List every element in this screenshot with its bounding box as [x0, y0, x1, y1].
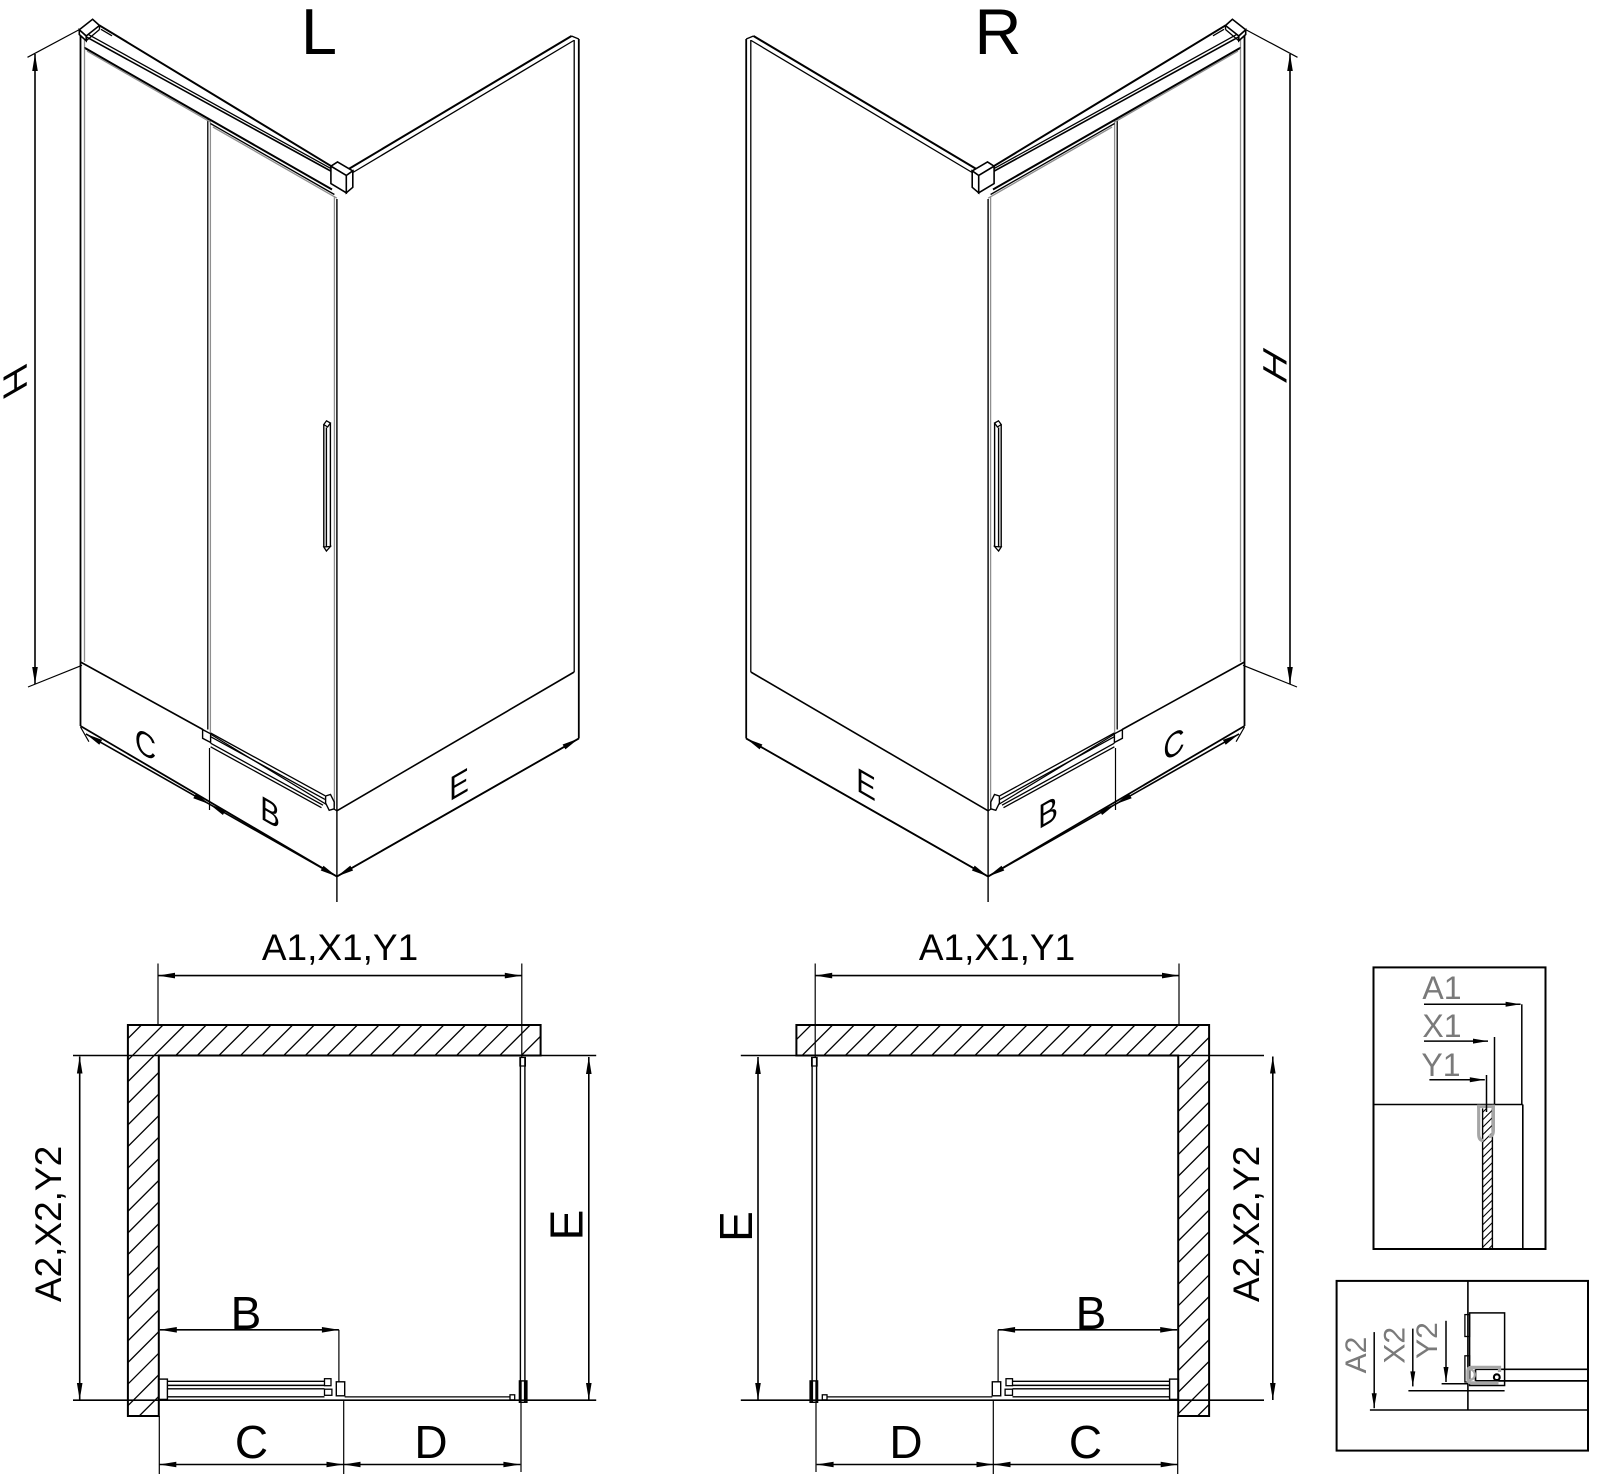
svg-text:Y1: Y1 — [1421, 1047, 1460, 1083]
svg-text:L: L — [301, 0, 337, 68]
svg-text:B: B — [1076, 1287, 1107, 1339]
svg-text:D: D — [889, 1416, 922, 1468]
svg-text:D: D — [414, 1416, 447, 1468]
svg-text:Y2: Y2 — [1411, 1322, 1444, 1359]
svg-text:A1: A1 — [1422, 970, 1461, 1006]
svg-text:C: C — [235, 1416, 268, 1468]
svg-text:A1,X1,Y1: A1,X1,Y1 — [262, 927, 418, 968]
svg-text:A2,X2,Y2: A2,X2,Y2 — [28, 1146, 69, 1302]
svg-text:A2,X2,Y2: A2,X2,Y2 — [1226, 1146, 1267, 1302]
svg-text:A1,X1,Y1: A1,X1,Y1 — [919, 927, 1075, 968]
svg-text:E: E — [541, 1210, 593, 1241]
svg-text:R: R — [975, 0, 1022, 68]
svg-text:A2: A2 — [1340, 1337, 1373, 1374]
svg-text:X2: X2 — [1379, 1327, 1412, 1364]
svg-text:B: B — [231, 1287, 262, 1339]
svg-text:X1: X1 — [1422, 1008, 1461, 1044]
svg-text:C: C — [1069, 1416, 1102, 1468]
svg-text:E: E — [710, 1211, 762, 1242]
